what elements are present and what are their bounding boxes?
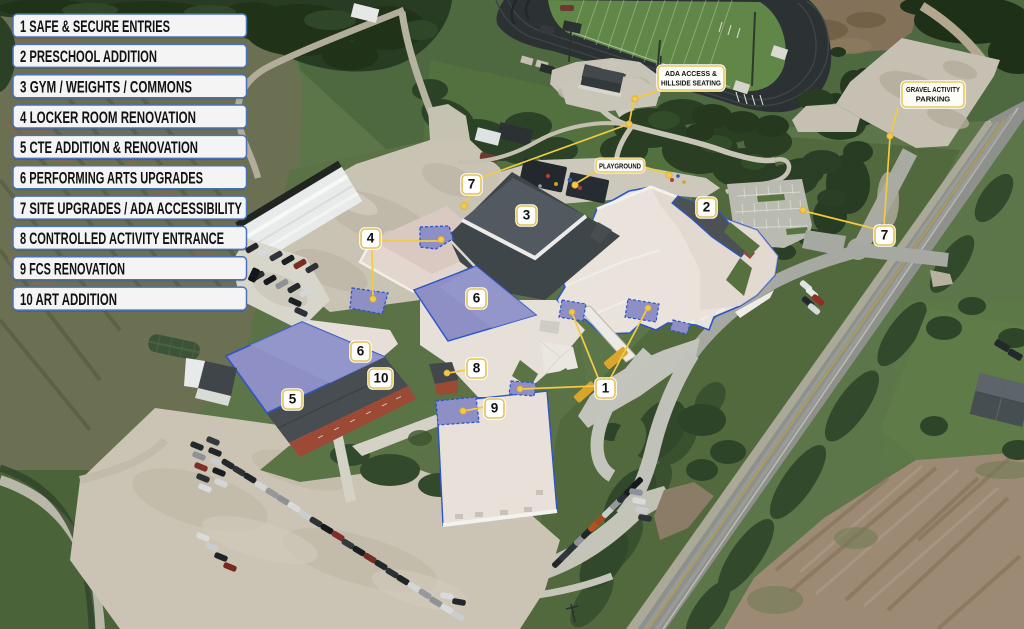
svg-text:4 LOCKER ROOM RENOVATION: 4 LOCKER ROOM RENOVATION — [20, 108, 196, 127]
svg-text:3: 3 — [523, 208, 531, 223]
svg-text:7 SITE UPGRADES / ADA ACCESSIB: 7 SITE UPGRADES / ADA ACCESSIBILITY — [20, 199, 242, 218]
svg-text:PLAYGROUND: PLAYGROUND — [599, 162, 641, 171]
svg-text:6: 6 — [473, 291, 481, 306]
svg-text:HILLSIDE SEATING: HILLSIDE SEATING — [661, 79, 721, 88]
svg-text:1 SAFE & SECURE ENTRIES: 1 SAFE & SECURE ENTRIES — [20, 17, 170, 36]
svg-text:1: 1 — [602, 381, 610, 396]
svg-text:GRAVEL ACTIVITY: GRAVEL ACTIVITY — [906, 85, 960, 94]
svg-text:8: 8 — [473, 361, 481, 376]
svg-text:5: 5 — [289, 392, 297, 407]
svg-text:7: 7 — [881, 228, 889, 243]
svg-text:9 FCS RENOVATION: 9 FCS RENOVATION — [20, 260, 125, 279]
svg-text:PARKING: PARKING — [916, 95, 951, 104]
svg-text:8 CONTROLLED ACTIVITY ENTRANCE: 8 CONTROLLED ACTIVITY ENTRANCE — [20, 229, 224, 248]
svg-text:ADA ACCESS &: ADA ACCESS & — [665, 69, 717, 78]
svg-text:4: 4 — [367, 231, 375, 246]
svg-text:6: 6 — [357, 344, 365, 359]
svg-text:6 PERFORMING ARTS UPGRADES: 6 PERFORMING ARTS UPGRADES — [20, 169, 203, 188]
svg-text:2 PRESCHOOL ADDITION: 2 PRESCHOOL ADDITION — [20, 47, 157, 66]
svg-text:3 GYM / WEIGHTS / COMMONS: 3 GYM / WEIGHTS / COMMONS — [20, 78, 192, 97]
svg-text:10: 10 — [373, 371, 388, 386]
svg-text:9: 9 — [491, 401, 499, 416]
svg-text:5 CTE ADDITION & RENOVATION: 5 CTE ADDITION & RENOVATION — [20, 138, 198, 157]
svg-text:2: 2 — [703, 200, 711, 215]
svg-text:7: 7 — [468, 177, 476, 192]
svg-text:10 ART ADDITION: 10 ART ADDITION — [20, 290, 117, 309]
